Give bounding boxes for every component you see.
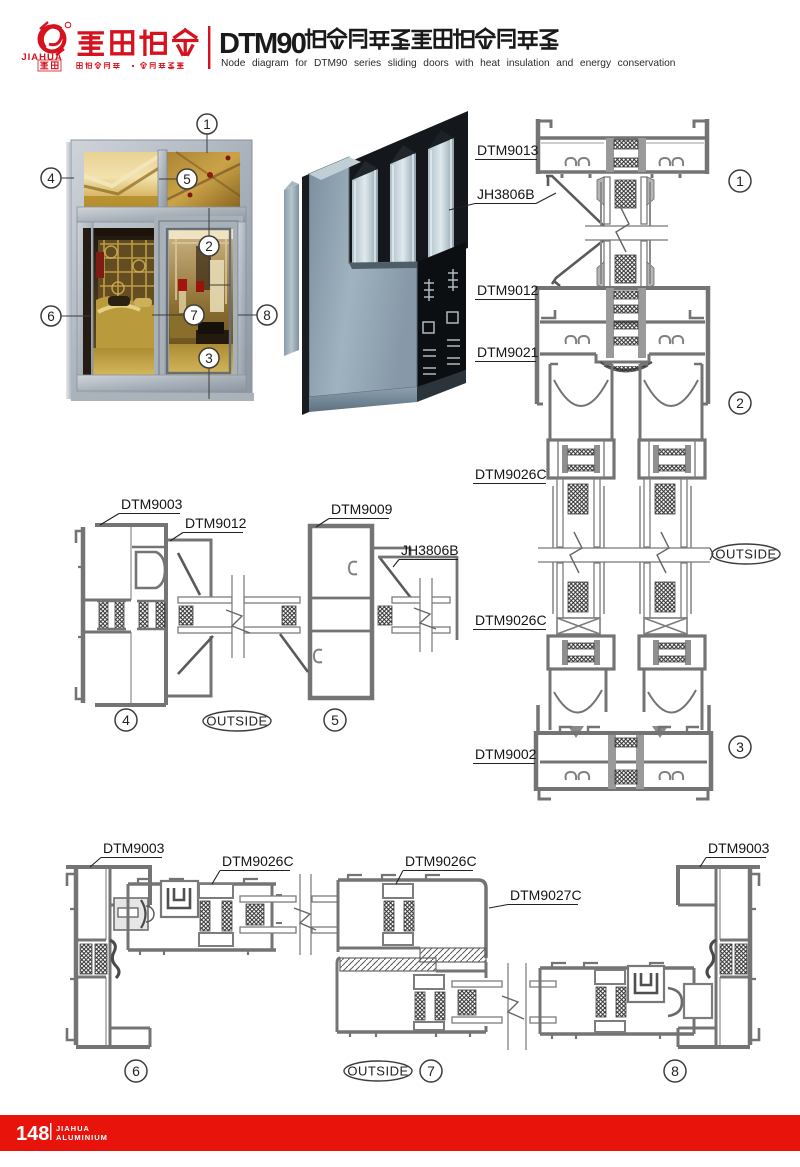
- svg-text:5: 5: [331, 712, 339, 728]
- svg-text:8: 8: [263, 308, 271, 323]
- svg-text:6: 6: [132, 1063, 140, 1079]
- svg-text:JH3806B: JH3806B: [401, 542, 459, 558]
- svg-text:OUTSIDE: OUTSIDE: [347, 1064, 408, 1079]
- svg-text:DTM9003: DTM9003: [121, 496, 183, 512]
- svg-text:2: 2: [736, 395, 744, 411]
- svg-text:DTM9012: DTM9012: [185, 515, 247, 531]
- svg-text:7: 7: [190, 308, 198, 323]
- svg-text:OUTSIDE: OUTSIDE: [206, 714, 267, 729]
- svg-text:1: 1: [736, 173, 744, 189]
- svg-text:8: 8: [671, 1063, 679, 1079]
- svg-text:DTM9013: DTM9013: [477, 142, 539, 158]
- svg-text:3: 3: [205, 351, 213, 366]
- svg-text:DTM9003: DTM9003: [103, 840, 165, 856]
- svg-text:6: 6: [47, 309, 55, 324]
- svg-text:1: 1: [203, 117, 211, 132]
- svg-text:DTM9009: DTM9009: [331, 501, 393, 517]
- svg-text:7: 7: [427, 1063, 435, 1079]
- svg-text:4: 4: [122, 712, 130, 728]
- svg-text:DTM9026C: DTM9026C: [475, 612, 547, 628]
- svg-text:3: 3: [736, 739, 744, 755]
- svg-text:DTM9026C: DTM9026C: [222, 853, 294, 869]
- svg-text:DTM9012: DTM9012: [477, 282, 539, 298]
- svg-text:DTM9021: DTM9021: [477, 344, 539, 360]
- svg-text:DTM90: DTM90: [219, 28, 306, 60]
- svg-text:5: 5: [183, 172, 191, 187]
- svg-text:DTM9026C: DTM9026C: [475, 466, 547, 482]
- svg-text:DTM9003: DTM9003: [708, 840, 770, 856]
- svg-text:4: 4: [47, 171, 55, 186]
- svg-text:2: 2: [205, 239, 213, 254]
- svg-text:DTM9027C: DTM9027C: [510, 887, 582, 903]
- svg-text:ALUMINIUM: ALUMINIUM: [56, 1133, 108, 1142]
- svg-text:DTM9002: DTM9002: [475, 746, 537, 762]
- svg-text:OUTSIDE: OUTSIDE: [715, 547, 776, 562]
- svg-text:DTM9026C: DTM9026C: [405, 853, 477, 869]
- svg-text:148: 148: [16, 1123, 49, 1145]
- svg-text:JH3806B: JH3806B: [477, 186, 535, 202]
- svg-text:JIAHUA: JIAHUA: [21, 52, 62, 63]
- svg-text:Node diagram for DTM90 series: Node diagram for DTM90 series sliding do…: [221, 58, 675, 69]
- svg-text:JIAHUA: JIAHUA: [56, 1124, 90, 1133]
